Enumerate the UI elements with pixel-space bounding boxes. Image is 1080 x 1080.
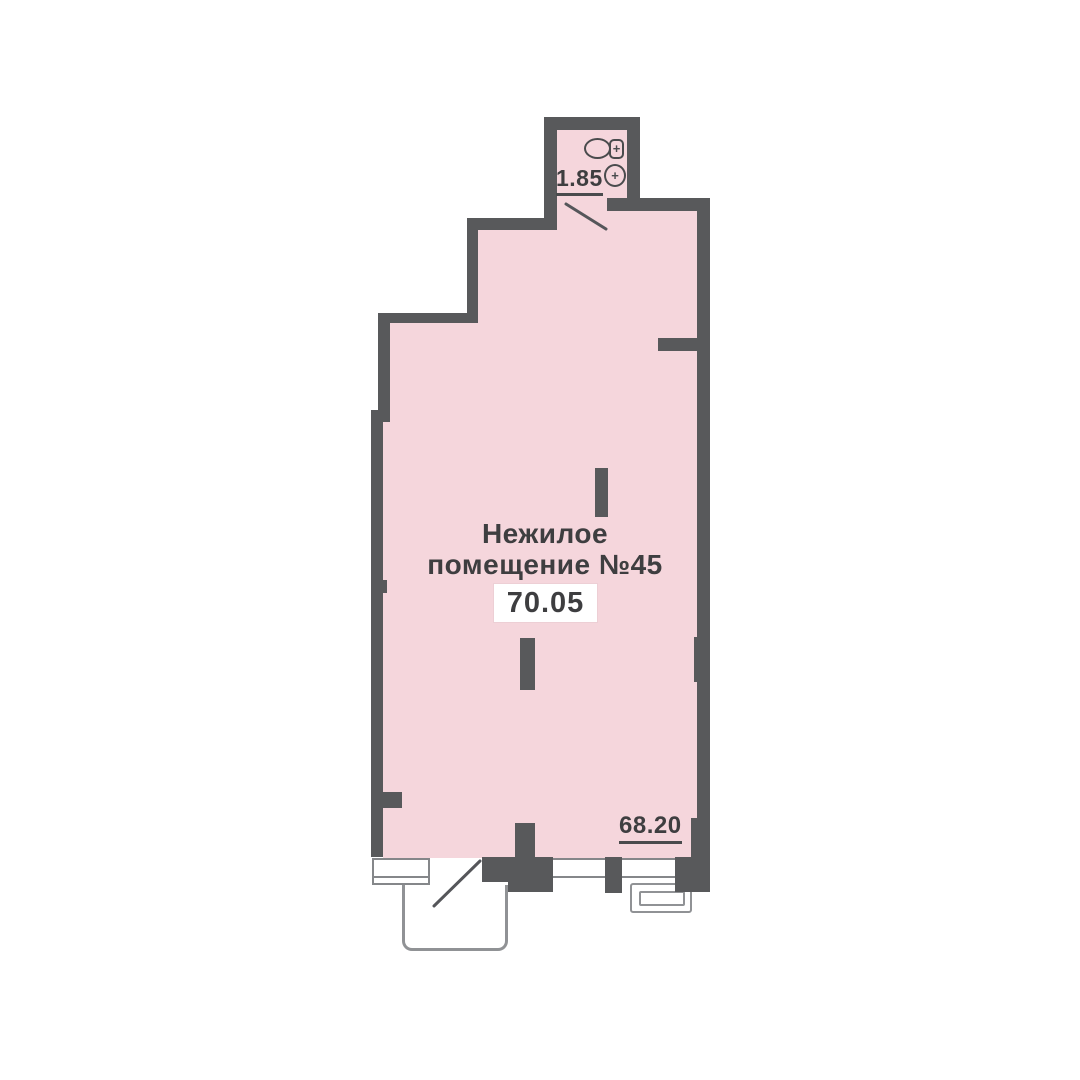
wall-pillar — [605, 857, 622, 893]
wall-segment — [378, 313, 478, 323]
wall-stub — [520, 638, 535, 690]
wall-segment — [697, 198, 710, 892]
bathroom-area-label: 1.85 — [556, 165, 603, 196]
wall-pilaster — [691, 818, 710, 892]
room-title: Нежилое помещение №45 — [395, 518, 695, 580]
window-sill-line — [374, 876, 428, 878]
wall-pilaster — [371, 580, 387, 593]
wall-segment — [627, 117, 640, 210]
sink-icon — [584, 138, 611, 159]
wall-stub — [515, 823, 535, 859]
wall-stub — [595, 468, 608, 517]
room-title-line1: Нежилое — [395, 518, 695, 549]
wall-segment — [607, 198, 710, 211]
window — [622, 858, 675, 878]
toilet-cross: + — [611, 169, 619, 182]
wall-segment — [467, 218, 478, 323]
total-area-value: 70.05 — [507, 587, 585, 620]
room-fill — [383, 420, 697, 858]
wall-segment — [467, 218, 557, 230]
total-area-badge: 70.05 — [494, 584, 597, 622]
wall-segment — [544, 117, 640, 130]
faucet-icon: + — [609, 139, 624, 159]
wall-stub — [658, 338, 708, 351]
wall-pilaster — [694, 637, 708, 682]
window — [372, 858, 430, 885]
room-area-label: 68.20 — [619, 812, 682, 844]
wall-segment — [371, 420, 383, 857]
room-title-line2: помещение №45 — [395, 549, 695, 580]
wall-segment — [378, 313, 390, 420]
wall-stub — [383, 792, 402, 808]
faucet-cross: + — [613, 142, 621, 155]
wall-segment — [508, 857, 553, 892]
floorplan-canvas: + + 1.85 Нежилое помещение №45 70.05 68.… — [0, 0, 1080, 1080]
porch-outline — [402, 885, 508, 951]
balcony-inner-outline — [639, 891, 685, 906]
window — [553, 858, 605, 878]
toilet-icon: + — [604, 164, 626, 187]
